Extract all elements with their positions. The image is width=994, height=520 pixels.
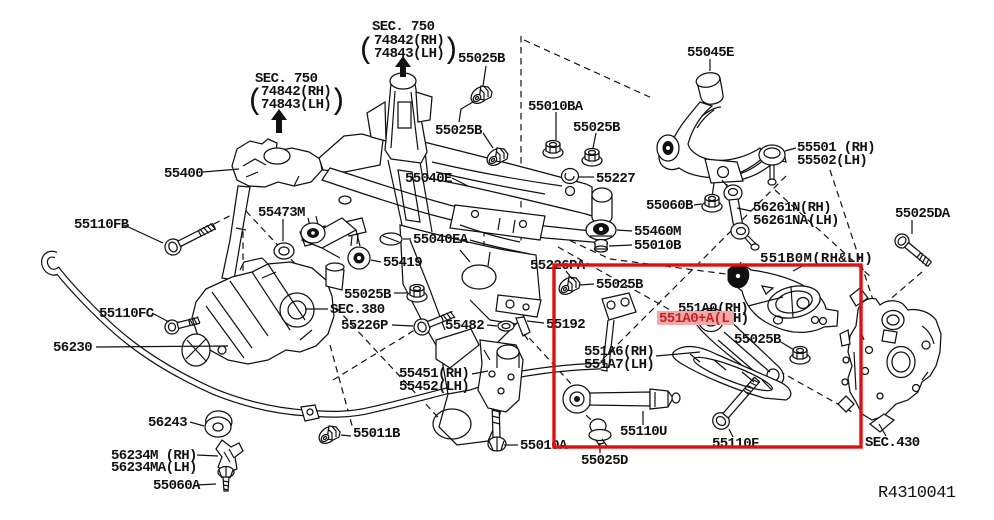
svg-text:55025B: 55025B [596,277,644,293]
svg-text:55011B: 55011B [353,426,401,442]
svg-text:55473M: 55473M [258,205,305,221]
svg-text:55400: 55400 [164,166,203,182]
svg-text:55060B: 55060B [646,198,694,214]
svg-text:55227: 55227 [596,171,635,187]
svg-text:55452(LH): 55452(LH) [399,379,469,395]
svg-text:56243: 56243 [148,415,187,431]
svg-text:(: ( [357,34,375,68]
svg-text:55192: 55192 [546,317,585,333]
svg-text:55060A: 55060A [153,478,201,494]
svg-text:56234MA(LH): 56234MA(LH) [111,460,197,476]
svg-text:SEC.380: SEC.380 [330,302,385,318]
svg-text:55025B: 55025B [344,287,392,303]
svg-text:55025B: 55025B [573,120,621,136]
svg-text:55040EA: 55040EA [413,232,469,248]
svg-text:551A7(LH): 551A7(LH) [584,357,654,373]
svg-text:55010B: 55010B [634,238,682,254]
svg-text:56261NA(LH): 56261NA(LH) [753,213,839,229]
svg-text:55110F: 55110F [712,436,759,452]
svg-text:55025B: 55025B [435,123,483,139]
svg-text:55419: 55419 [383,255,422,271]
svg-text:55045E: 55045E [687,45,734,61]
svg-text:R4310041: R4310041 [878,484,956,503]
svg-text:74843(LH): 74843(LH) [261,97,331,113]
svg-text:56230: 56230 [53,340,92,356]
svg-text:55110FB: 55110FB [74,217,130,233]
svg-text:55025B: 55025B [734,332,782,348]
svg-text:55010BA: 55010BA [528,99,584,115]
svg-text:55110FC: 55110FC [99,306,155,322]
svg-text:74843(LH): 74843(LH) [374,46,444,62]
svg-text:55226P: 55226P [341,318,388,334]
svg-text:H): H) [733,311,749,327]
svg-text:): ) [329,85,347,119]
svg-text:55025D: 55025D [581,453,628,469]
svg-text:551A0+A(L: 551A0+A(L [659,311,729,327]
svg-text:55110U: 55110U [620,424,667,440]
svg-text:55502(LH): 55502(LH) [797,153,867,169]
svg-text:55040E: 55040E [405,171,452,187]
svg-text:55482: 55482 [445,318,484,334]
svg-text:55025DA: 55025DA [895,206,951,222]
svg-text:55025B: 55025B [458,51,506,67]
svg-text:SEC.430: SEC.430 [865,435,920,451]
